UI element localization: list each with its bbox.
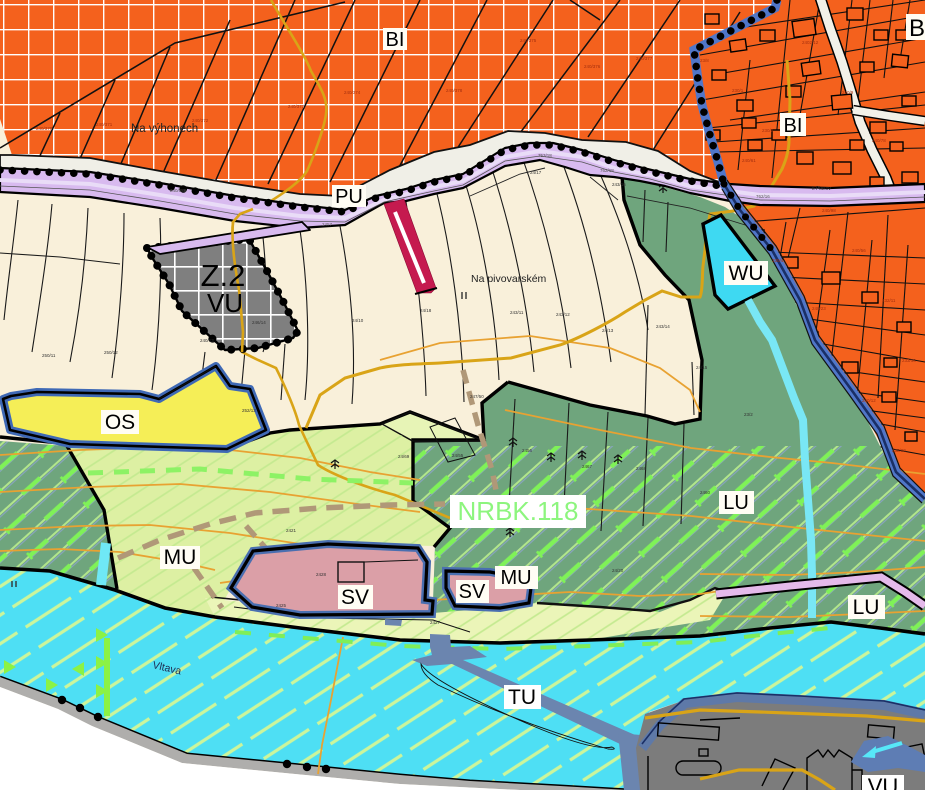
svg-text:243/12: 243/12 <box>556 312 570 317</box>
svg-text:250/11: 250/11 <box>42 353 56 358</box>
svg-text:243/11: 243/11 <box>510 310 524 315</box>
svg-text:240/586: 240/586 <box>170 188 187 193</box>
svg-text:240/376: 240/376 <box>584 64 601 69</box>
svg-text:OS: OS <box>105 411 135 434</box>
svg-text:24/55: 24/55 <box>452 453 464 458</box>
svg-text:LU: LU <box>853 596 880 619</box>
svg-text:LU: LU <box>723 492 749 514</box>
svg-text:k Plasov: k Plasov <box>812 186 831 192</box>
svg-text:24/18: 24/18 <box>420 308 432 313</box>
svg-text:230/4: 230/4 <box>772 258 784 263</box>
svg-text:240/9: 240/9 <box>842 90 854 95</box>
svg-text:240/371: 240/371 <box>96 122 113 127</box>
svg-text:24/17: 24/17 <box>530 170 542 175</box>
svg-text:240/12: 240/12 <box>862 398 876 403</box>
svg-text:240/98: 240/98 <box>822 208 836 213</box>
svg-text:233/16: 233/16 <box>902 358 916 363</box>
svg-text:250/12: 250/12 <box>104 350 118 355</box>
svg-text:24/20: 24/20 <box>612 568 624 573</box>
svg-text:24/15: 24/15 <box>696 365 708 370</box>
svg-text:240/375: 240/375 <box>520 38 537 43</box>
svg-text:240/370: 240/370 <box>36 126 53 131</box>
svg-text:MU: MU <box>500 567 531 589</box>
svg-text:240/23: 240/23 <box>812 306 826 311</box>
svg-text:232/80: 232/80 <box>892 448 906 453</box>
svg-text:VU: VU <box>207 288 243 318</box>
svg-text:BI: BI <box>386 29 405 51</box>
svg-text:2457: 2457 <box>322 222 333 227</box>
svg-text:WU: WU <box>729 262 764 285</box>
svg-text:2421: 2421 <box>286 528 297 533</box>
svg-text:240/378: 240/378 <box>446 88 463 93</box>
svg-text:2427: 2427 <box>430 620 441 625</box>
svg-text:24/10: 24/10 <box>352 318 364 323</box>
svg-text:24/13: 24/13 <box>602 328 614 333</box>
svg-text:240/13: 240/13 <box>200 338 214 343</box>
svg-text:230/1: 230/1 <box>732 88 744 93</box>
svg-text:24/69: 24/69 <box>398 454 410 459</box>
svg-text:VU: VU <box>868 774 899 790</box>
svg-text:243/16: 243/16 <box>612 182 626 187</box>
svg-text:762/16: 762/16 <box>756 194 770 199</box>
svg-text:252/13: 252/13 <box>242 408 256 413</box>
svg-text:TU: TU <box>508 686 536 709</box>
svg-text:240/377: 240/377 <box>636 56 653 61</box>
svg-text:762/18: 762/18 <box>600 168 614 173</box>
svg-text:2468: 2468 <box>636 466 647 471</box>
svg-text:BI: BI <box>909 15 925 42</box>
svg-text:Na výhonech: Na výhonech <box>131 123 198 135</box>
svg-text:753/18: 753/18 <box>538 153 552 158</box>
svg-text:SV: SV <box>341 586 369 609</box>
svg-text:240/78: 240/78 <box>872 138 886 143</box>
svg-text:23/2: 23/2 <box>744 412 753 417</box>
svg-text:232/11: 232/11 <box>882 298 896 303</box>
svg-text:2460: 2460 <box>700 490 711 495</box>
svg-text:Na pivovarském: Na pivovarském <box>471 273 547 285</box>
svg-text:SV: SV <box>459 581 486 603</box>
svg-text:2456: 2456 <box>522 448 533 453</box>
svg-text:23/8: 23/8 <box>700 58 709 63</box>
svg-text:BI: BI <box>784 115 803 137</box>
svg-text:PU: PU <box>335 186 363 208</box>
svg-text:MU: MU <box>164 546 197 569</box>
svg-text:230/2: 230/2 <box>762 128 774 133</box>
svg-text:2402/12: 2402/12 <box>802 40 819 45</box>
svg-text:240/374: 240/374 <box>344 90 361 95</box>
svg-text:2467: 2467 <box>582 464 593 469</box>
svg-text:240/56: 240/56 <box>852 248 866 253</box>
svg-text:240/61: 240/61 <box>742 158 756 163</box>
svg-text:247/50: 247/50 <box>470 394 484 399</box>
svg-text:NRBK.118: NRBK.118 <box>458 496 579 526</box>
svg-text:240/373: 240/373 <box>288 104 305 109</box>
svg-text:2428: 2428 <box>316 572 327 577</box>
svg-text:246/14: 246/14 <box>252 320 266 325</box>
svg-text:243/14: 243/14 <box>656 324 670 329</box>
svg-text:2425: 2425 <box>276 603 287 608</box>
